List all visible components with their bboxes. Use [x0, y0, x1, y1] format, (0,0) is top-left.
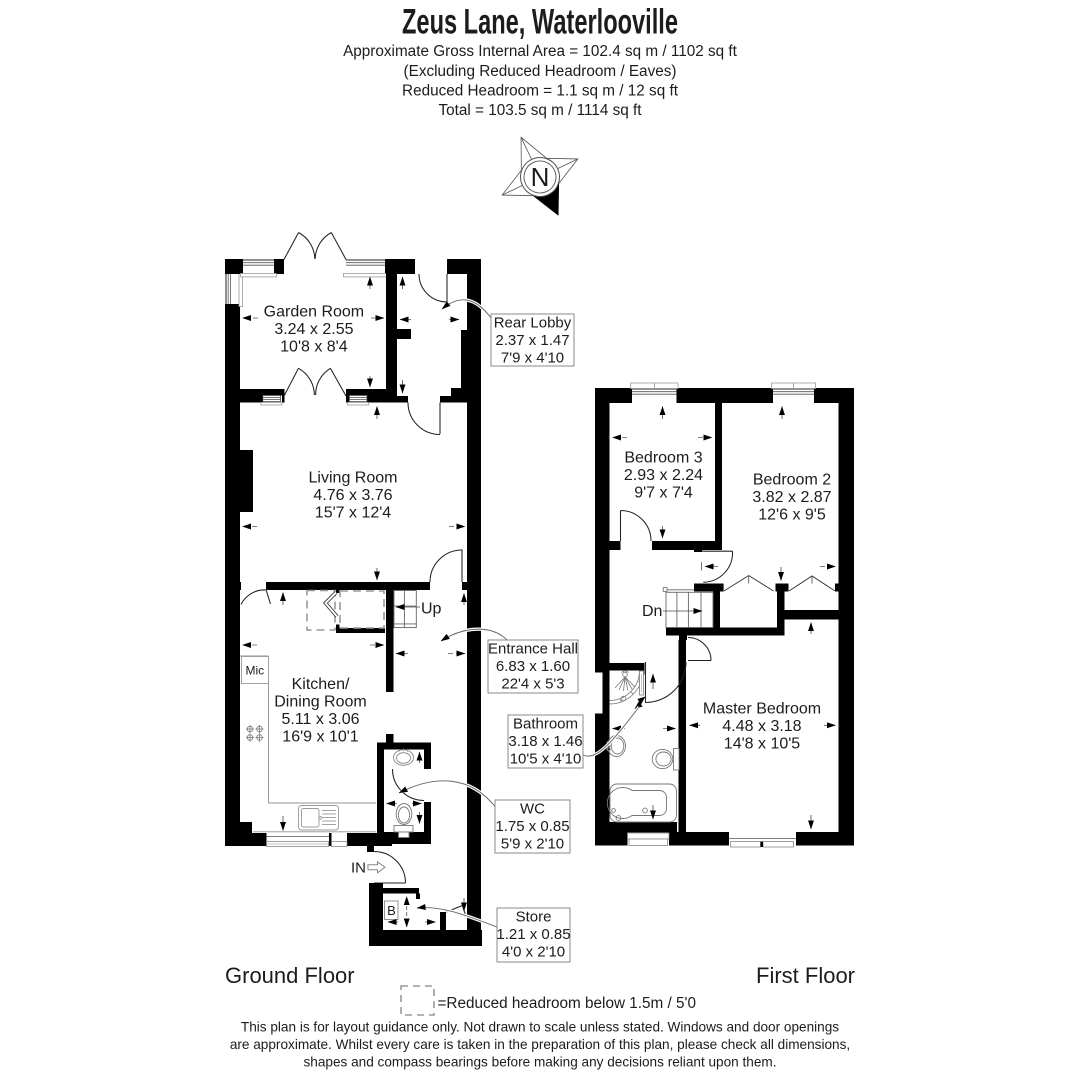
- svg-text:9'7 x 7'4: 9'7 x 7'4: [634, 485, 693, 502]
- svg-text:Ground Floor: Ground Floor: [225, 963, 355, 988]
- svg-text:3.18 x 1.46: 3.18 x 1.46: [508, 733, 582, 750]
- svg-text:4'0 x 2'10: 4'0 x 2'10: [502, 944, 565, 961]
- svg-text:1.21 x 0.85: 1.21 x 0.85: [496, 926, 570, 943]
- svg-text:Living Room: Living Room: [309, 470, 398, 487]
- svg-text:Reduced Headroom = 1.1 sq m /: Reduced Headroom = 1.1 sq m / 12 sq ft: [402, 83, 679, 100]
- svg-text:15'7 x 12'4: 15'7 x 12'4: [315, 505, 391, 522]
- svg-text:Garden Room: Garden Room: [264, 304, 365, 321]
- svg-text:10'8 x 8'4: 10'8 x 8'4: [280, 339, 348, 356]
- svg-text:4.76 x 3.76: 4.76 x 3.76: [313, 487, 392, 504]
- svg-text:22'4 x 5'3: 22'4 x 5'3: [501, 676, 564, 693]
- svg-text:2.93 x 2.24: 2.93 x 2.24: [624, 467, 703, 484]
- svg-text:Store: Store: [516, 909, 552, 926]
- svg-text:14'8 x 10'5: 14'8 x 10'5: [724, 736, 800, 753]
- svg-text:Master Bedroom: Master Bedroom: [703, 701, 821, 718]
- svg-text:12'6 x 9'5: 12'6 x 9'5: [758, 507, 826, 524]
- svg-text:3.82 x 2.87: 3.82 x 2.87: [752, 489, 831, 506]
- svg-text:5.11 x 3.06: 5.11 x 3.06: [282, 711, 360, 728]
- svg-text:Rear Lobby: Rear Lobby: [494, 315, 572, 332]
- svg-text:1.75 x 0.85: 1.75 x 0.85: [495, 818, 569, 835]
- svg-text:Up: Up: [421, 601, 442, 618]
- svg-text:16'9 x 10'1: 16'9 x 10'1: [282, 729, 358, 746]
- svg-text:IN: IN: [351, 860, 366, 877]
- svg-text:Dining Room: Dining Room: [274, 694, 366, 711]
- svg-text:Total = 103.5 sq m / 1114 sq f: Total = 103.5 sq m / 1114 sq ft: [438, 102, 642, 119]
- svg-text:This plan is for layout guidan: This plan is for layout guidance only. N…: [241, 1019, 839, 1034]
- svg-text:WC: WC: [520, 801, 545, 818]
- svg-text:N: N: [531, 162, 550, 192]
- svg-text:Bathroom: Bathroom: [513, 716, 578, 733]
- svg-text:Bedroom 2: Bedroom 2: [753, 472, 831, 489]
- svg-text:5'9 x 2'10: 5'9 x 2'10: [501, 836, 564, 853]
- svg-text:Zeus Lane, Waterlooville: Zeus Lane, Waterlooville: [402, 3, 678, 42]
- svg-text:3.24 x 2.55: 3.24 x 2.55: [274, 321, 353, 338]
- svg-text:shapes and compass bearings be: shapes and compass bearings before makin…: [303, 1055, 776, 1070]
- svg-text:Mic: Mic: [245, 664, 264, 678]
- svg-text:Dn: Dn: [642, 603, 662, 620]
- svg-text:6.83 x 1.60: 6.83 x 1.60: [496, 658, 570, 675]
- svg-text:Kitchen/: Kitchen/: [292, 676, 350, 693]
- svg-text:B: B: [387, 903, 396, 918]
- svg-text:2.37 x 1.47: 2.37 x 1.47: [495, 332, 569, 349]
- svg-text:First Floor: First Floor: [756, 963, 855, 988]
- svg-text:4.48 x 3.18: 4.48 x 3.18: [722, 718, 801, 735]
- svg-text:Approximate Gross Internal Are: Approximate Gross Internal Area = 102.4 …: [343, 43, 738, 60]
- svg-text:Entrance Hall: Entrance Hall: [488, 641, 578, 658]
- svg-text:(Excluding Reduced Headroom /: (Excluding Reduced Headroom / Eaves): [404, 63, 677, 80]
- svg-text:Bedroom 3: Bedroom 3: [624, 450, 702, 467]
- svg-text:are approximate. Whilst every: are approximate. Whilst every care is ta…: [230, 1037, 850, 1052]
- svg-text:10'5 x 4'10: 10'5 x 4'10: [510, 751, 582, 768]
- svg-text:=Reduced headroom below 1.5m /: =Reduced headroom below 1.5m / 5'0: [438, 995, 696, 1012]
- svg-text:7'9 x 4'10: 7'9 x 4'10: [501, 350, 564, 367]
